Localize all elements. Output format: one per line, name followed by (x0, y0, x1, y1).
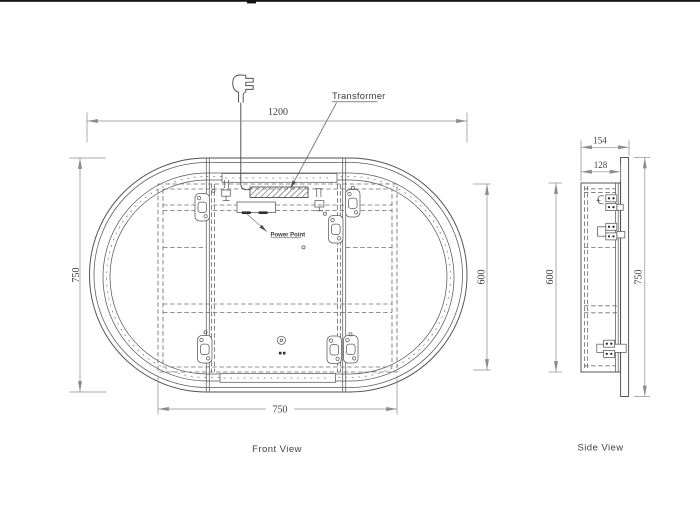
led-ring-band (103, 173, 454, 381)
dim-side-cabinet-depth-value: 128 (594, 160, 608, 170)
hinge (344, 336, 359, 364)
side-view: 154 128 600 750 Side View (545, 136, 650, 454)
transformer-label: Transformer (332, 91, 386, 101)
fitting-symbol-right (315, 189, 324, 211)
hinge (346, 190, 361, 218)
led-strip-top (222, 174, 337, 183)
dim-front-cabinet-height-value: 600 (477, 270, 488, 285)
dim-front-cabinet-height: 600 (473, 184, 491, 370)
dim-side-height-value: 750 (634, 270, 645, 285)
power-point-label: Power Point (271, 232, 306, 238)
dim-front-width-value: 1200 (268, 107, 288, 118)
cabinet-hidden-outline (158, 184, 397, 372)
hinge (195, 194, 210, 222)
power-point-box (237, 202, 276, 214)
side-mirror-panel (621, 158, 629, 397)
dim-side-cabinet-height: 600 (545, 183, 562, 372)
dim-side-overall-depth-value: 154 (593, 136, 607, 146)
dim-side-overall-depth: 154 (581, 136, 629, 181)
dim-side-cabinet-depth: 128 (581, 160, 621, 181)
side-view-label: Side View (577, 443, 623, 454)
transformer-box (250, 187, 308, 198)
hinges-side (597, 195, 627, 358)
dim-side-cabinet-height-value: 600 (545, 270, 556, 285)
sheet-top-border (0, 0, 700, 2)
centre-symbols (277, 336, 285, 354)
hinges-front (195, 186, 360, 363)
dim-front-height-value: 750 (71, 268, 82, 283)
sheet-top-notch (247, 0, 256, 3)
power-point-leader (247, 214, 267, 232)
power-point-annotation: Power Point (247, 214, 306, 239)
hinge (198, 336, 213, 364)
hinge (327, 336, 342, 364)
dim-side-height: 750 (634, 158, 651, 397)
hinge (329, 216, 344, 244)
fitting-symbol-left (222, 180, 231, 201)
technical-drawing-sheet: Transformer Power Point 1200 750 (0, 0, 700, 523)
led-strip-bottom (220, 374, 336, 383)
plug-icon (233, 75, 253, 103)
dim-front-height: 750 (70, 158, 107, 392)
drawing-canvas: Transformer Power Point 1200 750 (0, 0, 700, 523)
front-view: Transformer Power Point 1200 750 (70, 75, 491, 455)
front-view-label: Front View (252, 444, 302, 455)
dim-front-cabinet-width-value: 750 (273, 405, 288, 416)
dim-front-width: 1200 (87, 107, 467, 143)
